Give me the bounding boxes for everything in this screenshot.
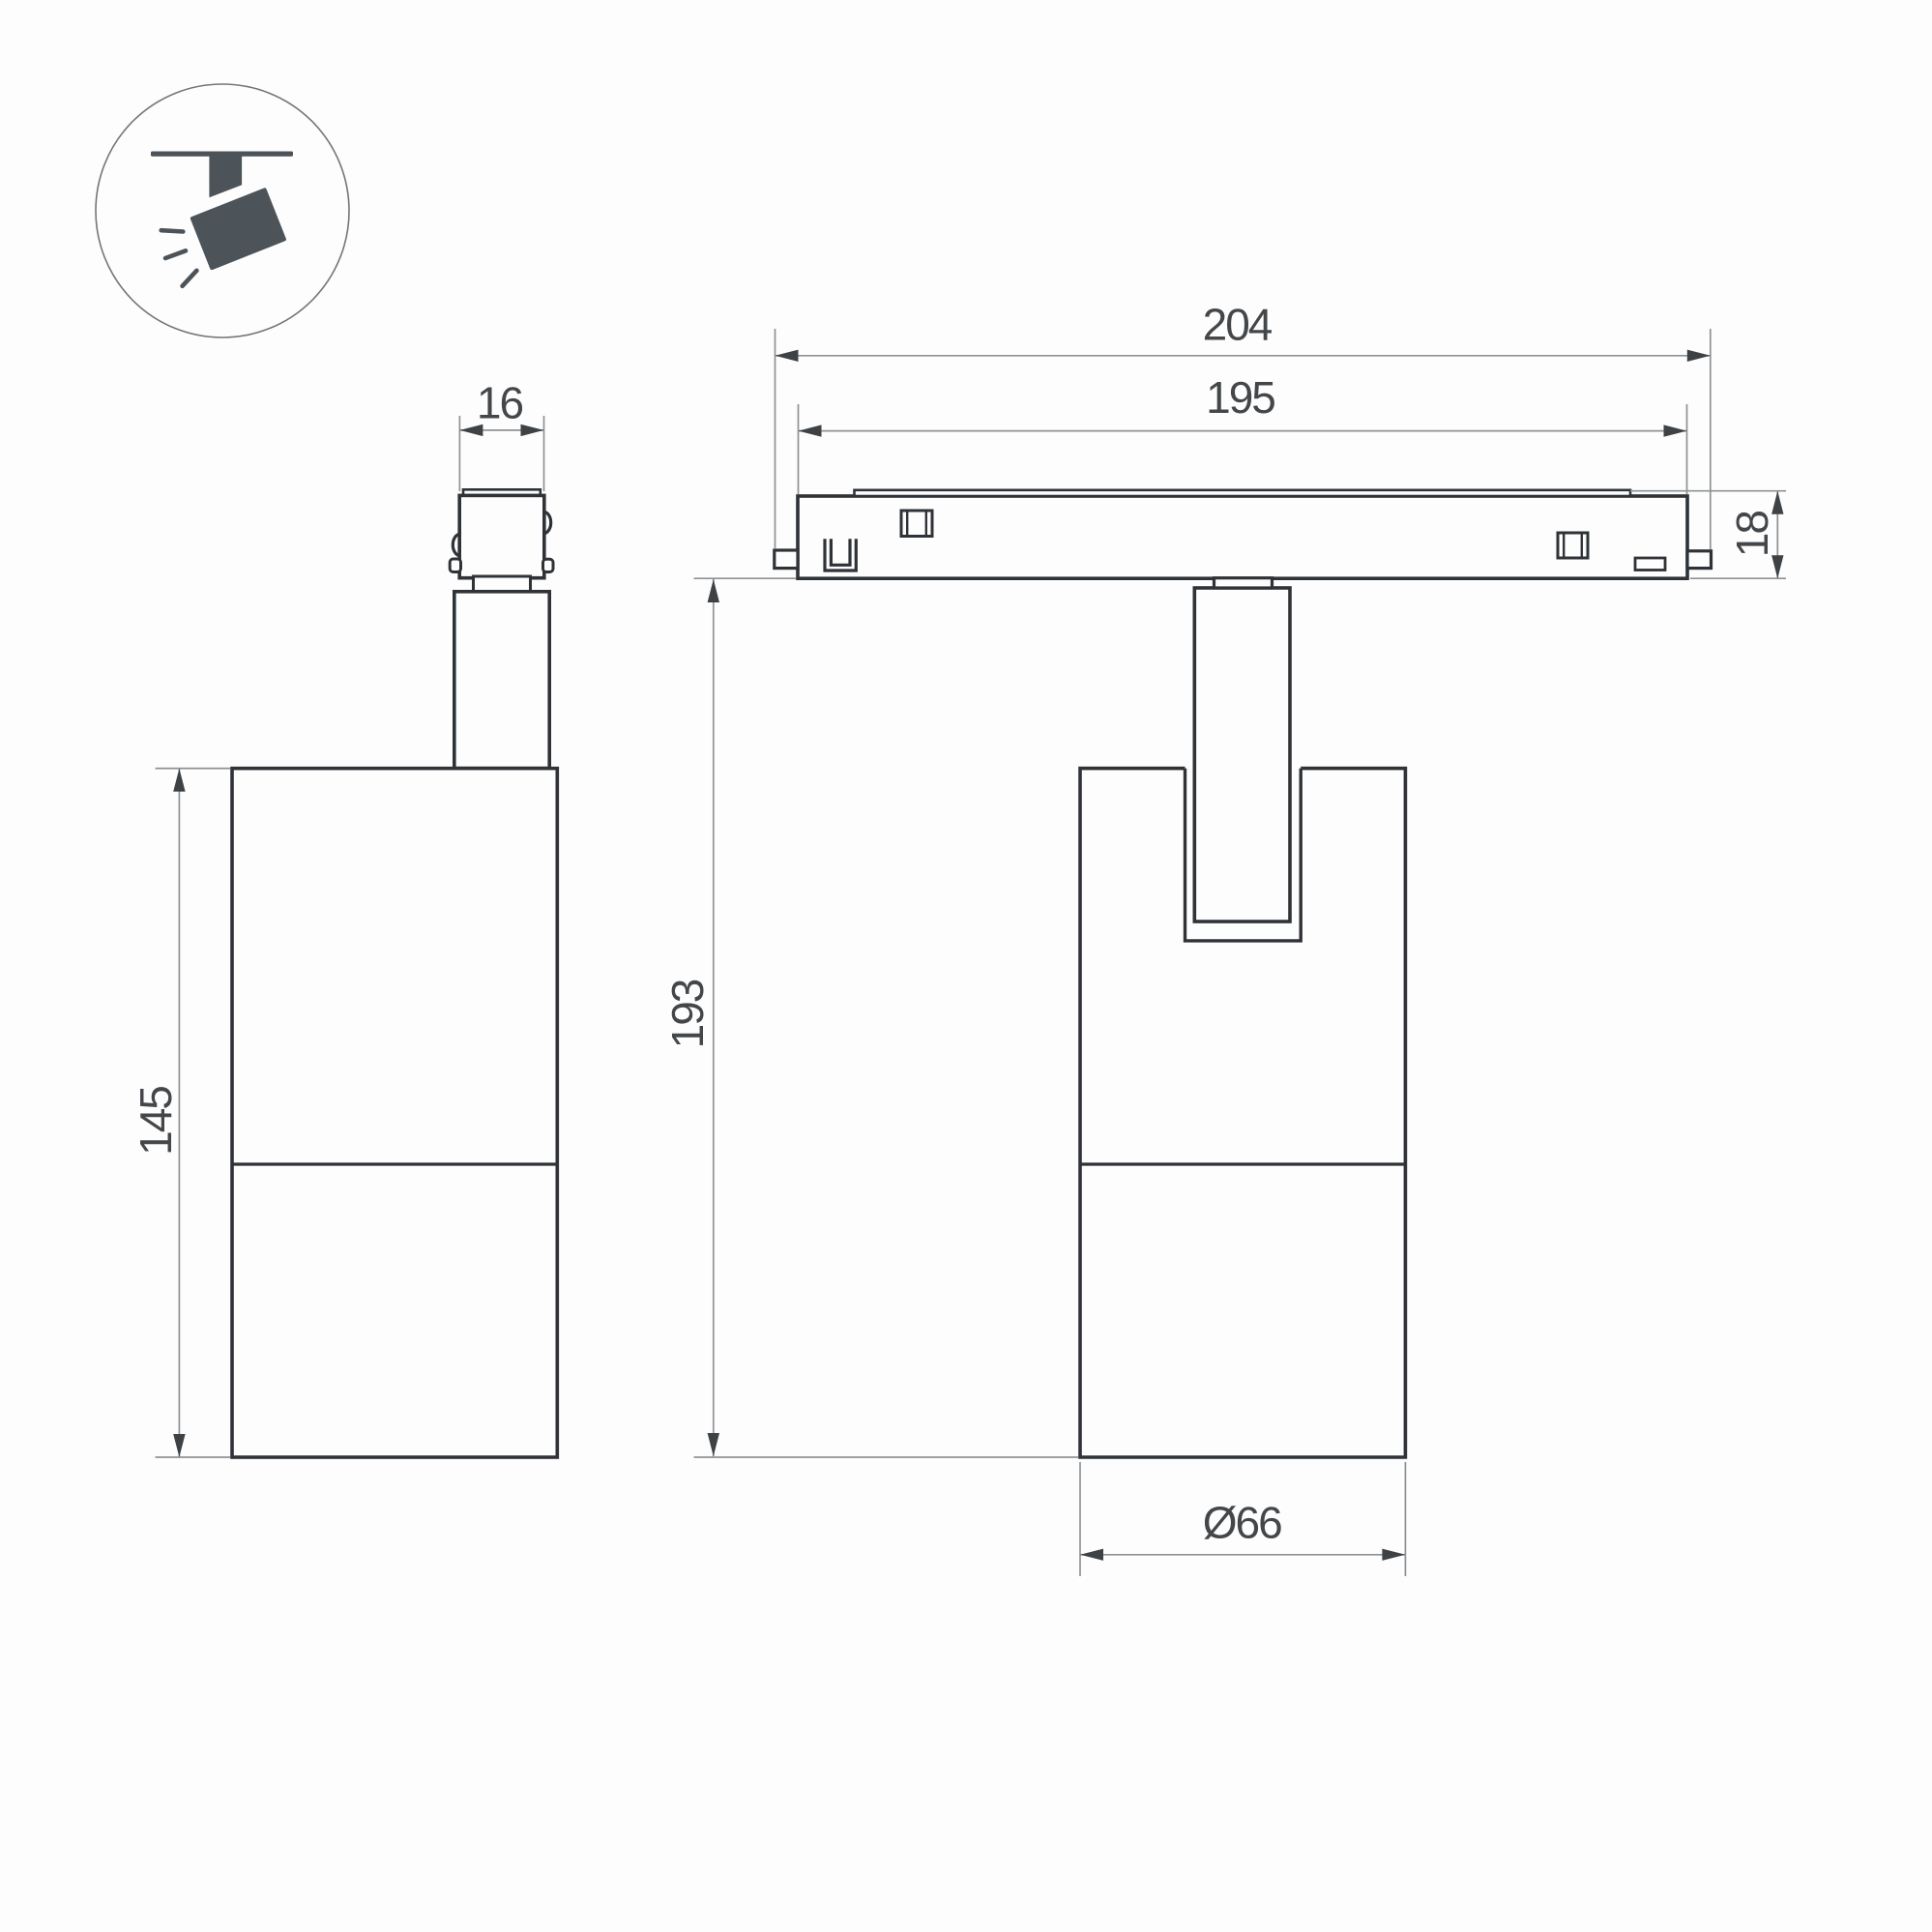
svg-text:16: 16 xyxy=(477,378,523,428)
svg-text:145: 145 xyxy=(131,1087,181,1156)
svg-text:Ø66: Ø66 xyxy=(1203,1498,1281,1548)
svg-text:195: 195 xyxy=(1206,372,1274,423)
svg-text:204: 204 xyxy=(1203,300,1273,350)
svg-text:18: 18 xyxy=(1727,512,1777,558)
svg-text:193: 193 xyxy=(662,980,713,1048)
